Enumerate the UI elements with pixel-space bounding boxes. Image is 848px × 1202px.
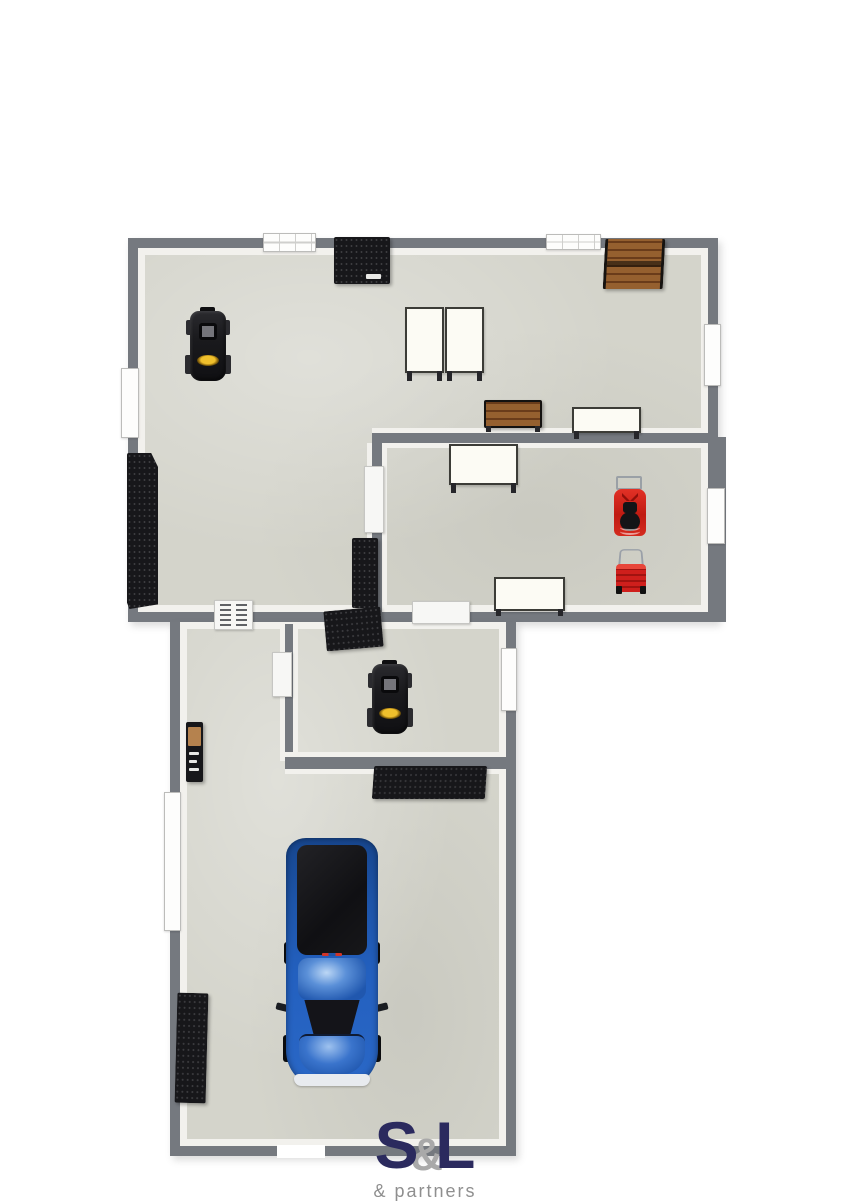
push-mower bbox=[615, 544, 647, 594]
mower-deck-line bbox=[620, 528, 640, 535]
wood-bench bbox=[484, 400, 542, 428]
window-middle-room-right bbox=[501, 648, 517, 711]
truck-bumper bbox=[294, 1074, 370, 1086]
door-top-middle bbox=[412, 601, 470, 624]
storage-rack-divider bbox=[352, 538, 378, 608]
table-leg bbox=[451, 483, 456, 493]
lawn-tractor-middle-room bbox=[370, 664, 410, 734]
storage-rack-garage-left bbox=[175, 993, 209, 1104]
bench-leg bbox=[535, 426, 540, 432]
mower-frame bbox=[616, 476, 642, 490]
worktable bbox=[449, 444, 518, 485]
brand-logo: S & L & partners bbox=[358, 1112, 492, 1202]
window-garage-left bbox=[164, 792, 181, 931]
mower-wheel bbox=[616, 586, 622, 594]
logo-wordmark: S & L bbox=[358, 1112, 492, 1178]
bench-leg bbox=[486, 426, 491, 432]
door-pane-pattern bbox=[236, 604, 247, 626]
tractor-body bbox=[372, 664, 408, 734]
storage-rack-left-wall bbox=[127, 453, 158, 609]
table-leg bbox=[407, 371, 412, 381]
door-hatched bbox=[214, 600, 253, 630]
logo-letter-s: S bbox=[375, 1112, 419, 1178]
door-pane-pattern bbox=[220, 604, 231, 626]
truck-bed-cover bbox=[297, 845, 367, 955]
table-leg bbox=[496, 609, 501, 616]
worktable bbox=[405, 307, 444, 373]
tractor-badge bbox=[379, 708, 401, 719]
storage-rack-tilted bbox=[323, 607, 383, 652]
mower-wheel bbox=[640, 586, 646, 594]
table-leg bbox=[477, 371, 482, 381]
worktable bbox=[494, 577, 565, 611]
window-right-wall-upper bbox=[704, 324, 721, 386]
table-leg bbox=[447, 371, 452, 381]
cabinet-mark bbox=[189, 768, 199, 771]
tool-cabinet bbox=[186, 722, 203, 782]
tractor-body bbox=[190, 311, 226, 381]
truck-hood bbox=[299, 1034, 365, 1074]
worktable bbox=[572, 407, 641, 433]
logo-tagline: & partners bbox=[358, 1181, 492, 1202]
riding-mower bbox=[612, 476, 648, 538]
window-left-wall bbox=[121, 368, 139, 438]
pickup-truck bbox=[286, 838, 378, 1086]
tractor-badge bbox=[197, 355, 219, 366]
door-divider-wall bbox=[364, 466, 384, 533]
cabinet-wood-top bbox=[188, 727, 201, 746]
logo-letter-l: L bbox=[435, 1112, 475, 1178]
wood-storage-shelf bbox=[603, 239, 666, 289]
table-leg bbox=[437, 371, 442, 381]
table-leg bbox=[634, 431, 639, 439]
cabinet-mark bbox=[189, 752, 199, 755]
wall-tool-rack bbox=[334, 237, 390, 284]
table-leg bbox=[574, 431, 579, 439]
window-right-wall-lower bbox=[707, 488, 725, 544]
storage-rack-below-middle-room bbox=[372, 766, 487, 799]
table-leg bbox=[558, 609, 563, 616]
table-leg bbox=[511, 483, 516, 493]
truck-cab-roof bbox=[298, 958, 366, 1000]
window-top-left bbox=[263, 233, 316, 252]
door-middle-room bbox=[272, 652, 292, 697]
interior-wall-horizontal bbox=[372, 433, 708, 443]
tractor-seat bbox=[199, 323, 217, 340]
tractor-seat bbox=[381, 676, 399, 693]
cabinet-mark bbox=[189, 760, 197, 763]
lawn-tractor-workshop bbox=[188, 311, 228, 381]
truck-brake-lights bbox=[322, 953, 342, 956]
garage-door-opening bbox=[277, 1145, 325, 1158]
tool-rack-label bbox=[366, 274, 381, 279]
window-top-right bbox=[546, 234, 601, 250]
worktable bbox=[445, 307, 484, 373]
